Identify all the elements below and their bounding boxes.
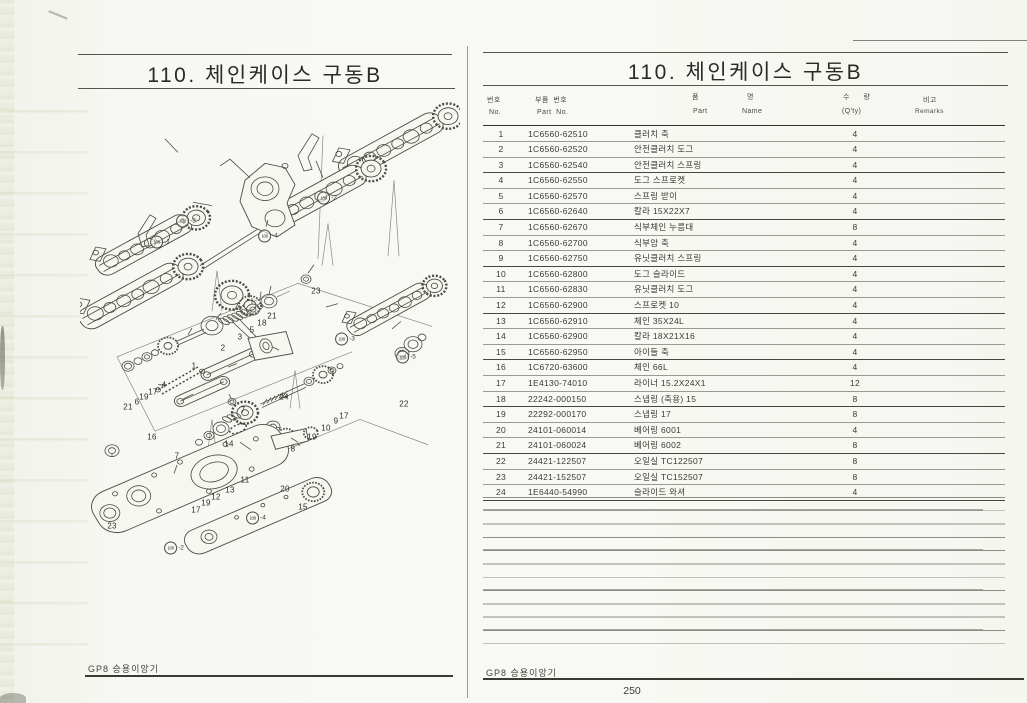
figure-reference-circle: 108 (164, 542, 177, 555)
right-title-rule-bottom (483, 85, 1008, 86)
cell-no: 20 (483, 423, 519, 437)
scratch-mark (48, 10, 67, 19)
float-stake (298, 134, 319, 171)
drive-shaft (200, 127, 421, 269)
figure-reference-suffix: -2 (178, 545, 184, 552)
cell-qty: 8 (835, 470, 875, 484)
spring (217, 308, 252, 325)
cell-qty: 4 (835, 204, 875, 218)
cell-no: 14 (483, 329, 519, 343)
figure-reference-suffix: -4 (260, 515, 266, 522)
cell-no: 5 (483, 189, 519, 203)
cell-part-number: 22292-000170 (528, 407, 586, 421)
cell-no: 23 (483, 470, 519, 484)
lower-exploded-parts (105, 334, 426, 457)
figure-reference-circle: 108 (335, 333, 348, 346)
cell-part-name: 오일실 TC122507 (634, 454, 703, 468)
cell-part-name: 스냅링 (축용) 15 (634, 392, 696, 406)
part-callout-number: 7 (175, 452, 180, 461)
cell-part-number: 1C6560-62950 (528, 345, 588, 359)
part-callout-number: 17 (191, 506, 201, 515)
part-callout-number: 23 (311, 287, 321, 296)
part-callout-number: 16 (147, 433, 157, 442)
part-callout-number: 17 (148, 388, 158, 397)
parts-table-body: 1 1C6560-62510 클러치 축 4 2 1C6560-62520 안전… (483, 127, 1005, 501)
chain-case-units (80, 100, 460, 341)
part-callout-number: 19 (307, 433, 317, 442)
table-row: 2 1C6560-62520 안전클러치 도그 4 (483, 142, 1005, 158)
inset-detail-box (232, 318, 293, 360)
figure-reference-callout: 108 -2 (164, 542, 184, 555)
cell-no: 19 (483, 407, 519, 421)
cell-qty: 4 (835, 314, 875, 328)
cell-part-number: 1C6560-62700 (528, 236, 588, 250)
table-row: 18 22242-000150 스냅링 (축용) 15 8 (483, 392, 1005, 408)
cell-no: 9 (483, 251, 519, 265)
header-no-en: No. (489, 109, 501, 116)
cell-qty: 12 (835, 376, 875, 390)
part-callout-number: 21 (267, 312, 277, 321)
chain-case-arm (180, 474, 336, 558)
cell-qty: 4 (835, 142, 875, 156)
sprocket-pair (215, 281, 261, 315)
part-callout-number: 15 (298, 503, 308, 512)
cell-part-name: 스프로켓 10 (634, 298, 679, 312)
table-row: 4 1C6560-62550 도그 스프로켓 4 (483, 173, 1005, 189)
header-no-kr: 번호 (487, 95, 501, 105)
table-row: 22 24421-122507 오일실 TC122507 8 (483, 454, 1005, 470)
cell-no: 15 (483, 345, 519, 359)
construction-lines (117, 135, 432, 495)
figure-reference-callout: 108 -2 (317, 192, 337, 205)
cell-qty: 4 (835, 298, 875, 312)
part-callout-number: 1 (192, 362, 197, 371)
bottom-smudge (0, 693, 26, 703)
cell-part-name: 식부체인 누름대 (634, 220, 694, 234)
figure-reference-suffix: -5 (410, 354, 416, 361)
header-part-en: Part No. (537, 109, 568, 116)
table-row: 6 1C6560-62640 칼라 15X22X7 4 (483, 204, 1005, 220)
upper-exploded-parts (122, 275, 311, 371)
cell-part-name: 베어링 6001 (634, 423, 681, 437)
cell-no: 2 (483, 142, 519, 156)
cell-part-name: 칼라 15X22X7 (634, 204, 690, 218)
cell-part-name: 스냅링 17 (634, 407, 671, 421)
cell-no: 1 (483, 127, 519, 141)
cell-part-name: 도그 슬라이드 (634, 267, 685, 281)
cell-part-number: 1C6560-62800 (528, 267, 588, 281)
table-row: 23 24421-152507 오일실 TC152507 8 (483, 470, 1005, 486)
cell-qty: 4 (835, 267, 875, 281)
diagram-drawing (80, 100, 460, 645)
cell-part-number: 24421-122507 (528, 454, 586, 468)
cell-part-number: 1C6560-62640 (528, 204, 588, 218)
cell-part-number: 1C6720-63600 (528, 360, 588, 374)
table-row: 19 22292-000170 스냅링 17 8 (483, 407, 1005, 423)
left-footer-rule (85, 675, 453, 677)
adjacent-page-edge (853, 40, 1027, 41)
part-callout-number: 19 (139, 393, 149, 402)
cell-part-number: 1C6560-62520 (528, 142, 588, 156)
part-callout-number: 22 (399, 400, 409, 409)
empty-table-rows-accent (483, 497, 983, 655)
header-part-kr: 부품 번호 (535, 95, 567, 105)
figure-reference-circle: 108 (150, 236, 163, 249)
part-callout-number: 17 (339, 412, 349, 421)
part-callout-number: 11 (241, 476, 250, 485)
part-callout-number: 19 (201, 499, 211, 508)
cell-qty: 8 (835, 438, 875, 452)
part-callout-number: 18 (257, 319, 267, 328)
center-gearbox (220, 159, 295, 237)
right-footer-rule (483, 678, 1024, 680)
scanned-parts-catalog-spread: 110. 체인케이스 구동B (0, 0, 1027, 703)
cell-part-name: 체인 66L (634, 360, 668, 374)
part-callout-number: 14 (224, 440, 234, 449)
scanner-streaks (0, 110, 88, 650)
figure-reference-circle: 108 (246, 512, 259, 525)
page-number: 250 (612, 685, 652, 697)
part-callout-number: 6 (135, 398, 140, 407)
part-callout-number: 20 (280, 485, 290, 494)
cell-part-number: 24421-152507 (528, 470, 586, 484)
cell-qty: 8 (835, 407, 875, 421)
cell-no: 11 (483, 282, 519, 296)
part-callout-number: 21 (123, 403, 133, 412)
table-row: 11 1C6560-62830 유닛클러치 도그 4 (483, 282, 1005, 298)
cell-part-name: 도그 스프로켓 (634, 173, 685, 187)
figure-reference-suffix: -3 (349, 336, 355, 343)
table-row: 7 1C6560-62670 식부체인 누름대 8 (483, 220, 1005, 236)
cell-qty: 4 (835, 189, 875, 203)
header-name-kr-b: 명 (747, 92, 754, 102)
figure-reference-suffix: -4 (272, 233, 278, 240)
cell-qty: 4 (835, 251, 875, 265)
table-row: 16 1C6720-63600 체인 66L 4 (483, 360, 1005, 376)
header-qty-kr: 수 량 (843, 92, 876, 102)
figure-reference-callout: 108 -1 (150, 236, 170, 249)
part-callout-number: 10 (321, 424, 331, 433)
figure-reference-callout: 108 -4 (246, 512, 266, 525)
cell-no: 10 (483, 267, 519, 281)
cell-part-number: 1C6560-62900 (528, 298, 588, 312)
left-title-rule-top (78, 54, 452, 55)
part-callout-number: 8 (291, 445, 296, 454)
part-callout-number: 7 (241, 406, 246, 415)
figure-reference-circle: 108 (258, 230, 271, 243)
header-remarks-kr: 비고 (923, 95, 937, 105)
figure-reference-suffix: -3 (190, 218, 196, 225)
float-stake (138, 215, 156, 247)
cell-part-name: 유닛클러치 스프링 (634, 251, 702, 265)
figure-reference-callout: 108 -4 (258, 230, 278, 243)
cell-qty: 4 (835, 345, 875, 359)
cell-part-number: 1C6560-62830 (528, 282, 588, 296)
figure-reference-suffix: -1 (164, 239, 170, 246)
cell-part-number: 22242-000150 (528, 392, 586, 406)
header-name-en-b: Name (742, 108, 762, 115)
cell-part-number: 1C6560-62900 (528, 329, 588, 343)
cell-part-name: 안전클러치 스프링 (634, 158, 702, 172)
cell-part-name: 체인 35X24L (634, 314, 684, 328)
cell-part-number: 1C6560-62570 (528, 189, 588, 203)
cell-no: 7 (483, 220, 519, 234)
table-row: 9 1C6560-62750 유닛클러치 스프링 4 (483, 251, 1005, 267)
part-callout-number: 9 (334, 417, 339, 426)
cell-part-name: 스프링 받이 (634, 189, 677, 203)
presser-arms (156, 347, 262, 409)
cell-part-number: 1C6560-62510 (528, 127, 588, 141)
figure-reference-callout: 108 -3 (176, 215, 196, 228)
table-row: 14 1C6560-62900 칼라 18X21X16 4 (483, 329, 1005, 345)
edge-smudge (0, 326, 5, 390)
cell-part-number: 24101-060024 (528, 438, 586, 452)
cell-no: 16 (483, 360, 519, 374)
cell-qty: 4 (835, 329, 875, 343)
table-row: 3 1C6560-62540 안전클러치 스프링 4 (483, 158, 1005, 174)
cell-part-number: 1C6560-62910 (528, 314, 588, 328)
header-remarks-en: Remarks (915, 108, 944, 115)
cell-part-name: 식부암 축 (634, 236, 669, 250)
leader-lines (112, 139, 401, 474)
table-row: 1 1C6560-62510 클러치 축 4 (483, 127, 1005, 143)
cell-qty: 4 (835, 127, 875, 141)
cell-no: 21 (483, 438, 519, 452)
cell-no: 6 (483, 204, 519, 218)
right-title-rule-top (483, 52, 1008, 53)
figure-reference-callout: 108 -3 (335, 333, 355, 346)
header-qty-en: (Q'ty) (842, 108, 861, 115)
cell-qty: 8 (835, 220, 875, 234)
cell-qty: 4 (835, 158, 875, 172)
chain-case-housing (85, 406, 326, 539)
cell-part-number: 1C6560-62540 (528, 158, 588, 172)
table-row: 13 1C6560-62910 체인 35X24L 4 (483, 314, 1005, 330)
cell-part-number: 1C6560-62750 (528, 251, 588, 265)
header-name-en-a: Part (693, 108, 707, 115)
cell-no: 17 (483, 376, 519, 390)
part-callout-number: 23 (107, 522, 117, 531)
cell-no: 18 (483, 392, 519, 406)
cell-part-number: 1C6560-62550 (528, 173, 588, 187)
part-callout-number: 24 (279, 393, 289, 402)
cell-qty: 4 (835, 173, 875, 187)
table-row: 15 1C6560-62950 아이들 축 4 (483, 345, 1005, 361)
cell-qty: 8 (835, 454, 875, 468)
cell-part-name: 칼라 18X21X16 (634, 329, 695, 343)
cell-no: 4 (483, 173, 519, 187)
right-page-title: 110. 체인케이스 구동B (483, 56, 1008, 86)
cell-qty: 4 (835, 423, 875, 437)
cell-part-name: 오일실 TC152507 (634, 470, 703, 484)
cell-part-name: 클러치 축 (634, 127, 669, 141)
part-callout-number: 3 (238, 333, 243, 342)
header-name-kr-a: 품 (692, 92, 699, 102)
cell-no: 13 (483, 314, 519, 328)
cell-no: 3 (483, 158, 519, 172)
cell-qty: 4 (835, 236, 875, 250)
table-row: 5 1C6560-62570 스프링 받이 4 (483, 189, 1005, 205)
part-callout-number: 2 (221, 344, 226, 353)
left-page-footer: GP8 승용이앙기 (88, 662, 159, 675)
table-row: 8 1C6560-62700 식부암 축 4 (483, 236, 1005, 252)
cell-qty: 8 (835, 392, 875, 406)
cell-part-name: 라이너 15.2X24X1 (634, 376, 706, 390)
table-row: 17 1E4130-74010 라이너 15.2X24X1 12 (483, 376, 1005, 392)
figure-reference-circle: 108 (317, 192, 330, 205)
part-callout-number: 13 (225, 486, 235, 495)
figure-reference-circle: 108 (396, 351, 409, 364)
cell-qty: 4 (835, 360, 875, 374)
figure-reference-circle: 108 (176, 215, 189, 228)
cell-part-number: 1E4130-74010 (528, 376, 587, 390)
figure-reference-callout: 108 -5 (396, 351, 416, 364)
table-row: 21 24101-060024 베어링 6002 8 (483, 438, 1005, 454)
left-title-rule-bottom (78, 88, 455, 89)
part-callout-number: 4 (162, 381, 167, 390)
part-callout-number: 5 (250, 326, 255, 335)
part-callout-number: 12 (211, 493, 221, 502)
table-row: 20 24101-060014 베어링 6001 4 (483, 423, 1005, 439)
cell-part-number: 24101-060014 (528, 423, 586, 437)
table-row: 10 1C6560-62800 도그 슬라이드 4 (483, 267, 1005, 283)
cell-part-name: 베어링 6002 (634, 438, 681, 452)
table-row: 12 1C6560-62900 스프로켓 10 4 (483, 298, 1005, 314)
cell-no: 12 (483, 298, 519, 312)
cell-no: 8 (483, 236, 519, 250)
cell-qty: 4 (835, 282, 875, 296)
cell-part-name: 아이들 축 (634, 345, 669, 359)
left-page-title: 110. 체인케이스 구동B (78, 59, 452, 89)
cell-part-number: 1C6560-62670 (528, 220, 588, 234)
page-crease (467, 46, 468, 698)
figure-reference-suffix: -2 (331, 195, 337, 202)
cell-no: 22 (483, 454, 519, 468)
cell-part-name: 유닛클러치 도그 (634, 282, 694, 296)
cell-part-name: 안전클러치 도그 (634, 142, 694, 156)
